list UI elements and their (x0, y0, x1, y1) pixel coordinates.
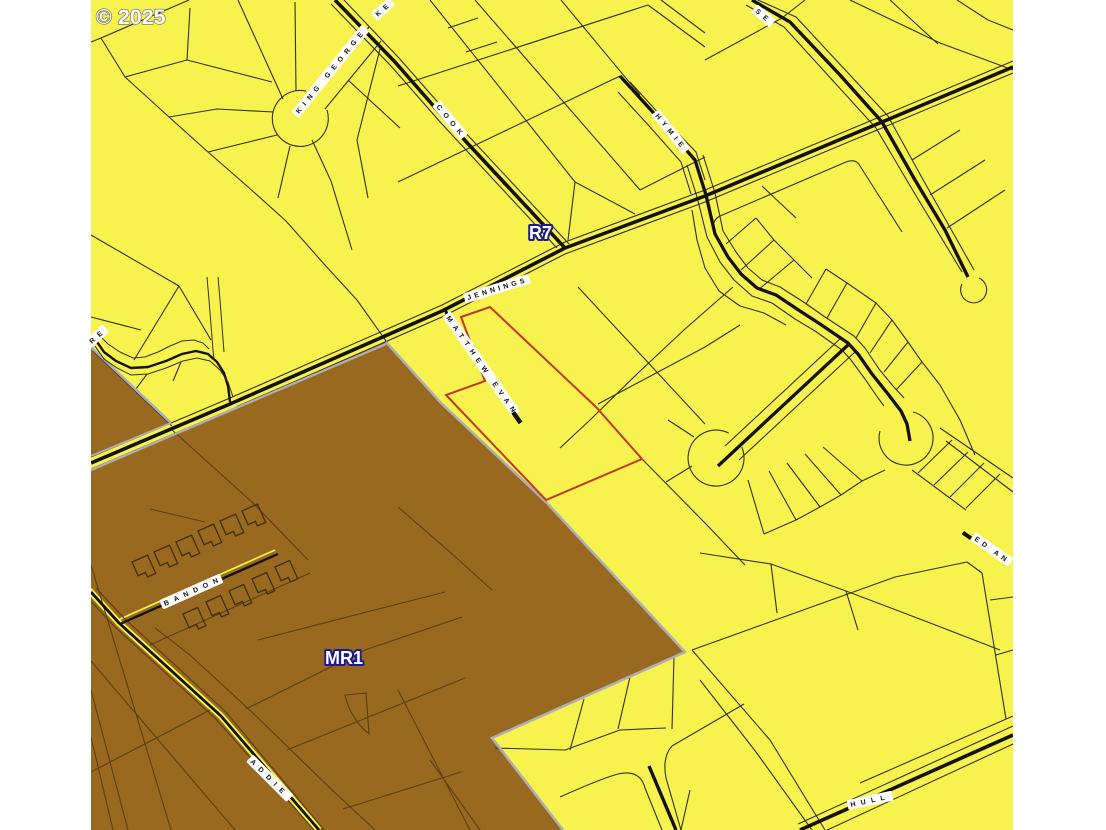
svg-text:R7: R7 (529, 223, 552, 243)
svg-text:© 2025: © 2025 (96, 5, 166, 29)
svg-text:MR1: MR1 (325, 648, 363, 668)
